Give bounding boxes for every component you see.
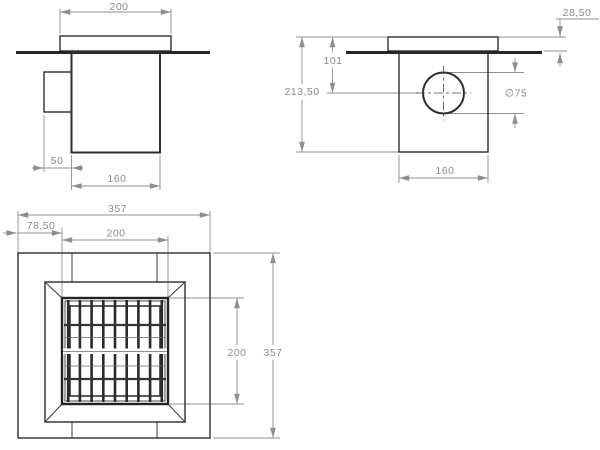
front-view: 101 213,50 ∅75 28,50 160: [284, 7, 599, 183]
dim-overall-width-label: 357: [108, 203, 127, 215]
dim-outlet-depth-label: 50: [51, 155, 64, 167]
dim-grate-height-label: 200: [227, 347, 246, 359]
top-view: 357 78,50 200 200 357: [3, 203, 283, 438]
dim-total-height-label: 213,50: [284, 86, 319, 98]
dim-flange-offset-label: 78,50: [27, 220, 56, 232]
dim-overall-height-label: 357: [263, 347, 282, 359]
side-view: 200 50 160: [16, 1, 210, 190]
dim-cap-width-label: 200: [109, 1, 128, 13]
drain-body: [72, 52, 161, 153]
dim-front-body-width-label: 160: [435, 165, 454, 177]
drawing-canvas: 200 50 160 101: [0, 0, 600, 450]
side-outlet-box: [44, 72, 72, 112]
technical-drawing: 200 50 160 101: [0, 0, 600, 450]
drain-cap: [60, 36, 171, 51]
dim-outlet-diameter-label: ∅75: [505, 88, 527, 100]
dim-outlet-center-depth-label: 101: [323, 55, 342, 67]
dim-rim-height-label: 28,50: [563, 7, 592, 19]
dim-body-width-label: 160: [107, 173, 126, 185]
grate: [62, 298, 168, 404]
dim-grate-width-label: 200: [106, 228, 125, 240]
drain-cap-front: [388, 37, 498, 51]
